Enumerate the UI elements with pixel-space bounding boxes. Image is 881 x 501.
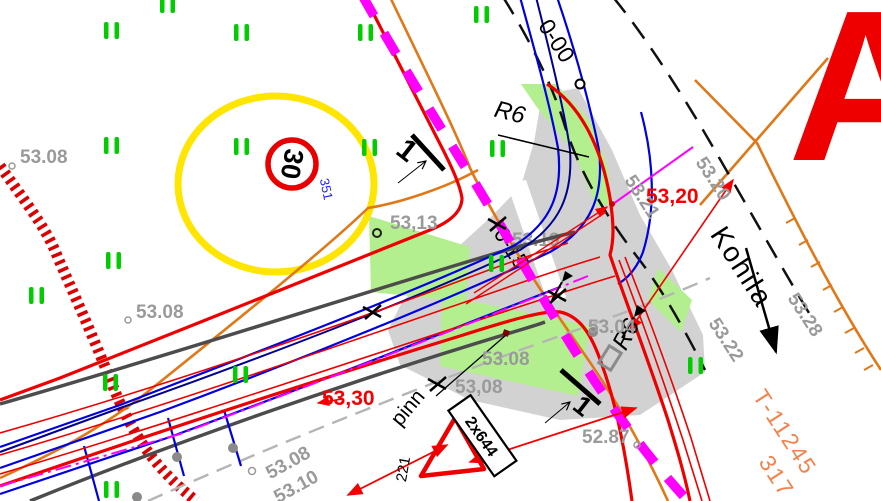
spot-height-6: 53,08 [455, 377, 503, 398]
spot-height-11: 53.28 [783, 289, 827, 340]
spot-height-2: 53.08 [136, 302, 184, 323]
road-name-label: Kohila [705, 221, 780, 313]
veg-marker [106, 252, 121, 269]
sheet-corner-letter: A [788, 0, 881, 206]
spot-node-1 [9, 163, 15, 169]
node-3 [132, 492, 142, 501]
veg-marker [160, 0, 175, 13]
radius-label-north: R6 [492, 96, 529, 130]
veg-marker [234, 24, 249, 41]
section-number-a: 1 [390, 132, 423, 168]
culvert-stub-2 [224, 410, 241, 466]
node-1 [228, 443, 238, 453]
spot-height-7: 53.04 [588, 317, 636, 338]
speed-sign-value: 30 [275, 147, 310, 182]
spot-height-8: 52.87 [582, 427, 630, 448]
spot-node-13 [249, 468, 256, 475]
station-label-start: 0-00 [533, 14, 580, 67]
veg-marker [104, 137, 119, 154]
design-level-west: 53,30 [322, 387, 375, 410]
speed-sign-group: 30 351 [178, 96, 374, 272]
survey-note-label: pinn [386, 385, 429, 430]
veg-marker [29, 287, 44, 304]
station-circle [576, 80, 585, 89]
spot-height-12: 53.22 [704, 314, 748, 365]
section-marker-a: 1 [390, 132, 444, 183]
veg-marker [104, 481, 119, 498]
yield-sign-id: 221 [393, 455, 414, 483]
veg-marker [104, 22, 119, 39]
spot-height-3: 53,13 [390, 213, 438, 234]
spot-node-2 [125, 317, 131, 323]
veg-marker [234, 138, 249, 155]
node-2 [172, 452, 182, 462]
veg-marker [490, 140, 505, 157]
speed-sign-id: 351 [317, 177, 336, 201]
veg-marker [474, 6, 489, 23]
design-point-node [609, 201, 615, 207]
site-plan-drawing: 53.19 0-15 30 351 [0, 0, 881, 501]
site-plan-canvas: 53.19 0-15 30 351 [0, 0, 881, 501]
veg-marker [358, 24, 373, 41]
spot-height-5: 53.08 [482, 349, 530, 370]
design-level-junction: 53,20 [646, 185, 699, 208]
hatched-wall-band [0, 166, 196, 501]
spot-height-1: 53.08 [20, 147, 68, 168]
